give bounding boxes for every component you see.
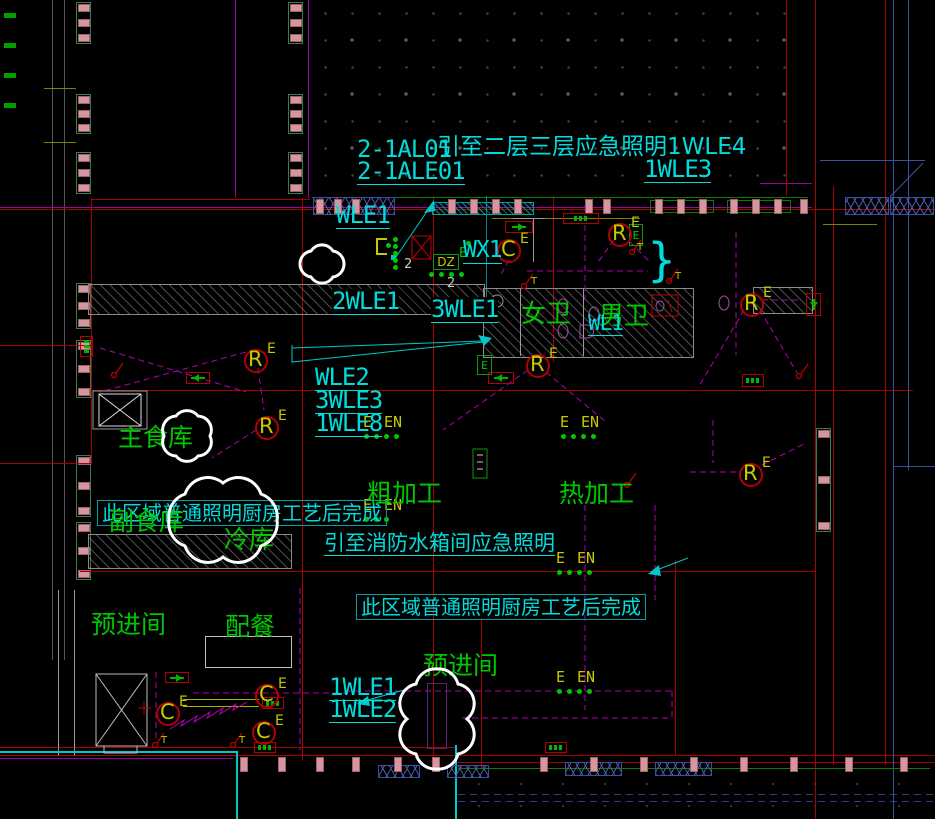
revision-cloud-layer <box>0 0 935 819</box>
revision-cloud-icon <box>163 411 212 462</box>
circuit-label: WL1 <box>588 313 623 336</box>
revision-cloud-icon <box>300 245 344 283</box>
cad-canvas[interactable]: E E DZ E RE RE RE RE RE RE CE CE CE CE T… <box>0 0 935 819</box>
revision-cloud-icon <box>169 478 277 563</box>
revision-cloud-icon <box>400 669 474 769</box>
